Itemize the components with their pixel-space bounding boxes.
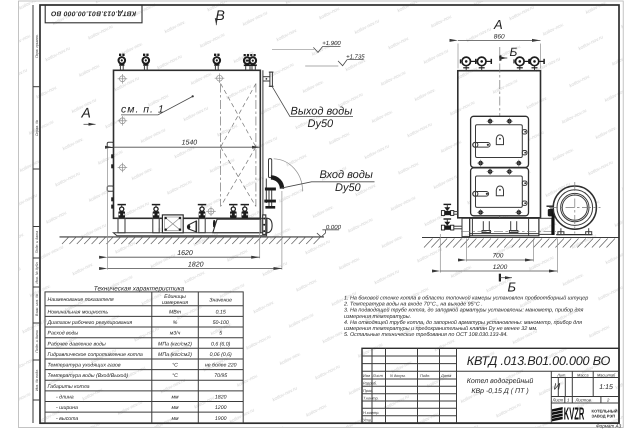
svg-text:мм: мм bbox=[171, 395, 179, 401]
svg-text:5: 5 bbox=[219, 331, 222, 337]
svg-text:Габариты котла: Габариты котла bbox=[48, 384, 90, 390]
svg-text:Dy50: Dy50 bbox=[308, 118, 335, 130]
svg-text:0,06 (0,6): 0,06 (0,6) bbox=[210, 352, 232, 358]
svg-text:1: 1 bbox=[567, 397, 569, 402]
svg-text:Взам. инв. №: Взам. инв. № bbox=[35, 294, 39, 316]
svg-text:Dy50: Dy50 bbox=[335, 182, 362, 194]
svg-text:1. На боковой стенке котла в: 1. На боковой стенке котла в области топ… bbox=[344, 296, 588, 302]
svg-text:Справ. №: Справ. № bbox=[35, 120, 39, 136]
svg-text:мм: мм bbox=[171, 405, 179, 411]
svg-text:Выход воды: Выход воды bbox=[291, 106, 353, 118]
svg-text:Инв. № подл.: Инв. № подл. bbox=[35, 369, 39, 391]
svg-text:N докум.: N докум. bbox=[390, 373, 406, 378]
svg-text:Разраб.: Разраб. bbox=[363, 381, 377, 386]
svg-text:Б: Б bbox=[508, 279, 517, 294]
svg-text:0,6 (6,0): 0,6 (6,0) bbox=[211, 341, 231, 347]
svg-text:Т.контр.: Т.контр. bbox=[363, 395, 379, 400]
svg-text:2. Температура воды на входе: 2. Температура воды на входе 70°С., на в… bbox=[343, 302, 483, 308]
svg-text:1200: 1200 bbox=[215, 405, 227, 411]
svg-text:МПа (кгс/см2): МПа (кгс/см2) bbox=[158, 341, 192, 347]
svg-text:Рабочее давление воды: Рабочее давление воды bbox=[48, 341, 106, 347]
svg-text:Лит.: Лит. bbox=[556, 372, 566, 377]
svg-text:мм: мм bbox=[171, 416, 179, 422]
svg-text:Изм: Изм bbox=[363, 373, 371, 378]
svg-text:°С: °С bbox=[172, 363, 178, 369]
svg-text:Температура воды (Вход/Выход): Температура воды (Вход/Выход) bbox=[48, 373, 129, 379]
svg-text:Расход воды: Расход воды bbox=[48, 331, 79, 337]
svg-text:Н.контр.: Н.контр. bbox=[363, 410, 379, 415]
svg-text:Котел водогрейный: Котел водогрейный bbox=[467, 377, 534, 385]
svg-text:1900: 1900 bbox=[215, 416, 227, 422]
svg-text:- ширина: - ширина bbox=[56, 405, 78, 411]
svg-text:0,15: 0,15 bbox=[216, 309, 226, 315]
svg-text:Номинальная мощность: Номинальная мощность bbox=[48, 309, 109, 315]
svg-text:КВТД .013.В01.00.000 ВО: КВТД .013.В01.00.000 ВО bbox=[467, 354, 611, 368]
svg-text:Б: Б bbox=[510, 45, 518, 59]
svg-text:50-100: 50-100 bbox=[213, 320, 229, 326]
svg-text:- длина: - длина bbox=[56, 395, 74, 401]
svg-text:1540: 1540 bbox=[182, 140, 198, 147]
svg-text:700: 700 bbox=[493, 253, 504, 260]
svg-text:Лист: Лист bbox=[372, 373, 384, 378]
svg-text:Диапазон рабочего регулировани: Диапазон рабочего регулирования bbox=[47, 320, 133, 326]
svg-text:см. п. 1: см. п. 1 bbox=[121, 104, 165, 116]
svg-text:+1.900: +1.900 bbox=[322, 40, 341, 47]
svg-text:А: А bbox=[493, 17, 503, 32]
svg-text:- высота: - высота bbox=[56, 416, 78, 422]
svg-text:1200: 1200 bbox=[493, 264, 508, 271]
svg-text:Подп. и дата: Подп. и дата bbox=[35, 330, 39, 353]
svg-text:м3/ч: м3/ч bbox=[170, 331, 181, 337]
svg-text:Подп. и дата: Подп. и дата bbox=[35, 231, 39, 254]
svg-text:Дата: Дата bbox=[440, 373, 452, 378]
svg-text:5. Остальные технические треб: 5. Остальные технические требования по О… bbox=[344, 332, 508, 338]
svg-text:70/95: 70/95 bbox=[214, 373, 227, 379]
svg-text:ЗАВОД РЭП: ЗАВОД РЭП bbox=[592, 414, 616, 419]
svg-text:И: И bbox=[554, 382, 561, 392]
svg-text:860: 860 bbox=[494, 33, 505, 40]
svg-text:А: А bbox=[81, 104, 91, 120]
svg-text:Утв.: Утв. bbox=[363, 417, 372, 422]
svg-text:1620: 1620 bbox=[177, 250, 193, 257]
svg-text:Листов: Листов bbox=[575, 397, 592, 402]
svg-text:КВТД.013.В01.00.000 ВО: КВТД.013.В01.00.000 ВО bbox=[50, 9, 136, 16]
svg-text:Лист: Лист bbox=[552, 397, 564, 402]
svg-text:КВр -0,15 Д ( ПТ ): КВр -0,15 Д ( ПТ ) bbox=[471, 387, 528, 395]
svg-text:1:15: 1:15 bbox=[599, 384, 613, 391]
svg-text:KVZR: KVZR bbox=[564, 404, 585, 424]
svg-text:Подп.: Подп. bbox=[420, 373, 430, 378]
svg-text:не более 220: не более 220 bbox=[205, 363, 237, 369]
svg-text:измерения температуры и предох: измерения температуры и предохранительны… bbox=[344, 326, 538, 332]
svg-text:1820: 1820 bbox=[215, 395, 227, 401]
svg-text:Техническая характеристика: Техническая характеристика bbox=[94, 285, 185, 292]
svg-text:измерения: измерения bbox=[162, 300, 188, 306]
svg-text:Масштаб: Масштаб bbox=[597, 372, 616, 377]
svg-text:Формат А3: Формат А3 bbox=[596, 424, 622, 429]
svg-text:Пров.: Пров. bbox=[363, 388, 373, 393]
svg-text:%: % bbox=[173, 320, 178, 326]
svg-text:В: В bbox=[216, 7, 225, 23]
svg-text:Значение: Значение bbox=[209, 297, 232, 303]
svg-text:МПа (кгс/см2): МПа (кгс/см2) bbox=[158, 352, 192, 358]
svg-text:Наименование показателя: Наименование показателя bbox=[48, 297, 114, 303]
svg-text:4. На отводящей трубе котла,: 4. На отводящей трубе котла, до запорной… bbox=[344, 320, 582, 326]
svg-text:Масса: Масса bbox=[577, 372, 589, 377]
svg-text:Перв. примен.: Перв. примен. bbox=[35, 34, 39, 58]
svg-text:Температура уходящих газов: Температура уходящих газов bbox=[48, 363, 121, 369]
svg-text:Вход воды: Вход воды bbox=[320, 169, 373, 181]
svg-text:Гидравлическое сопротивление к: Гидравлическое сопротивление котла bbox=[48, 352, 143, 358]
svg-text:Инв. № дубл.: Инв. № дубл. bbox=[35, 261, 39, 283]
svg-text:°С: °С bbox=[172, 373, 178, 379]
svg-text:+1.735: +1.735 bbox=[346, 53, 365, 60]
svg-text:3. На подводящей трубе котла,: 3. На подводящей трубе котла, до запорно… bbox=[344, 308, 584, 314]
svg-text:МВт: МВт bbox=[169, 309, 182, 315]
svg-text:1820: 1820 bbox=[188, 261, 204, 268]
svg-text:измерения температуры.: измерения температуры. bbox=[344, 314, 411, 320]
